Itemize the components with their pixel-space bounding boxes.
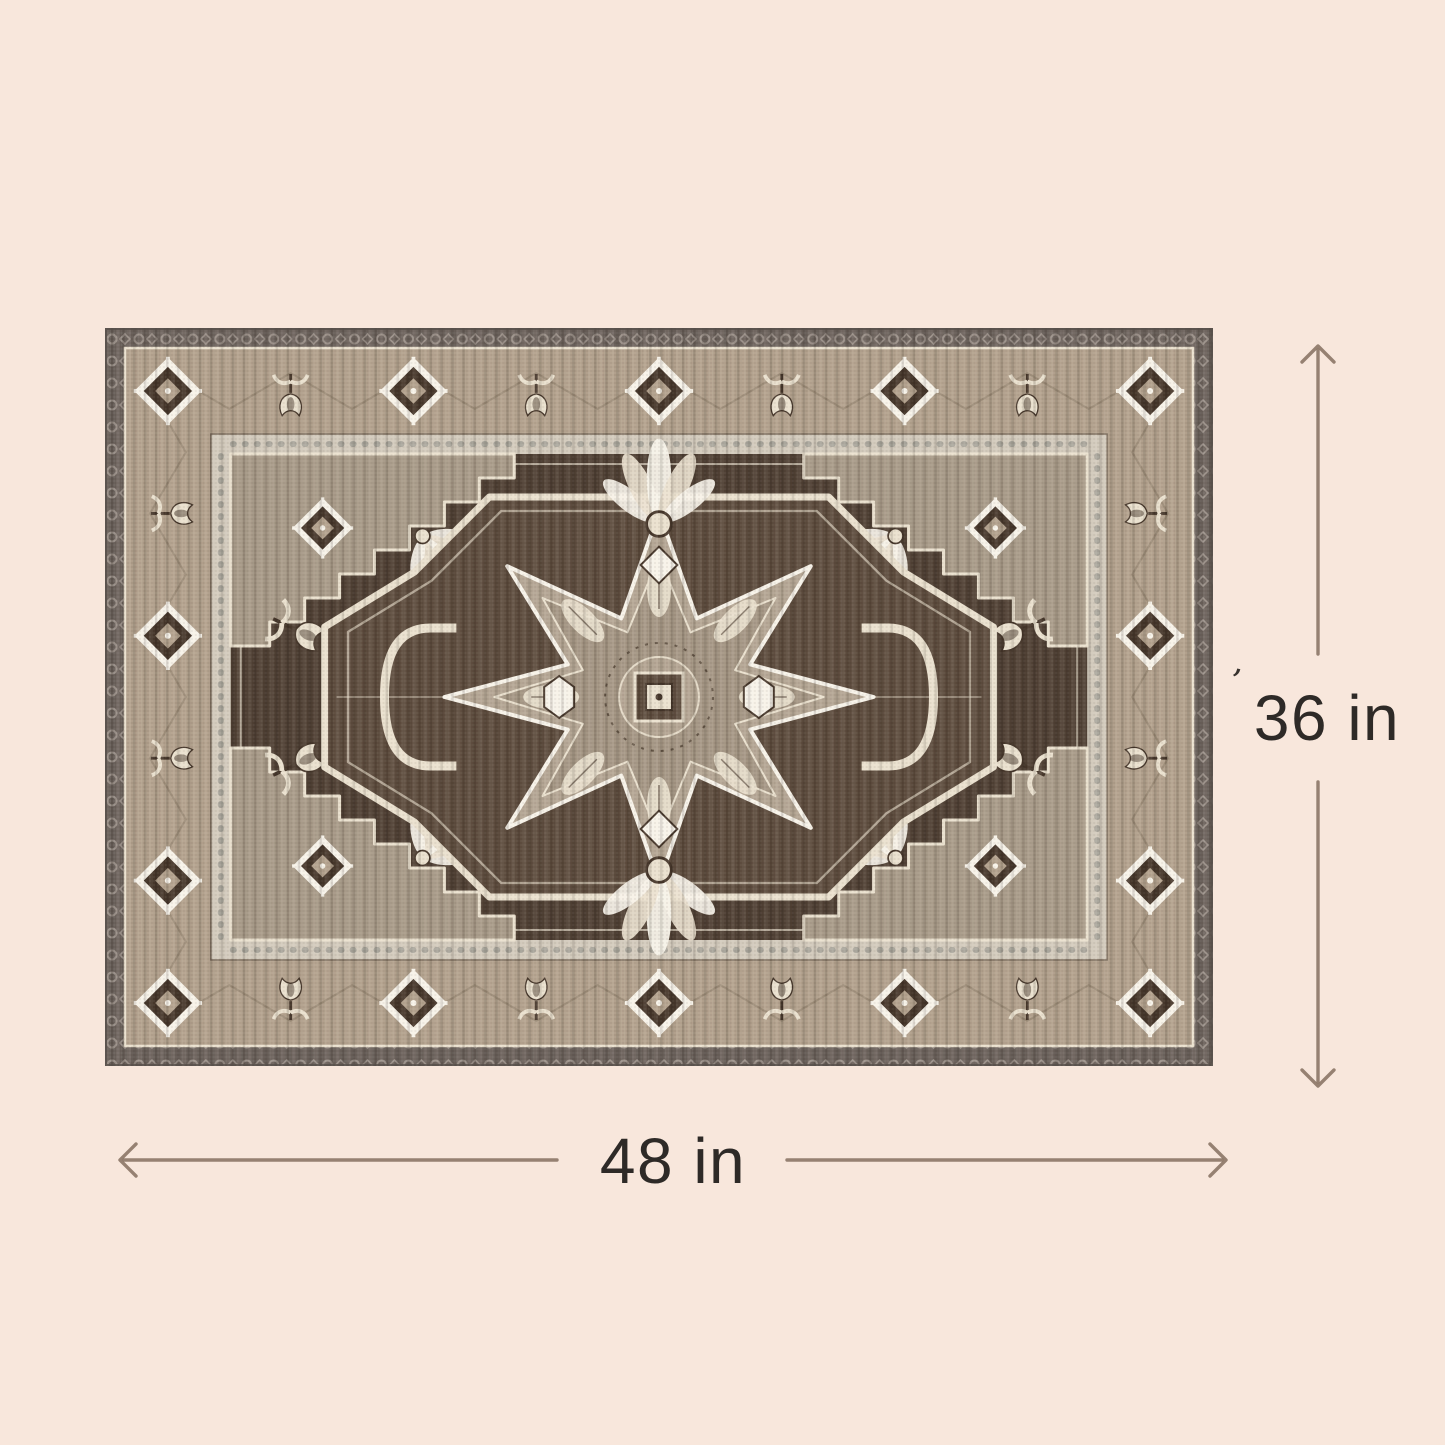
rug-graphic [105, 328, 1213, 1066]
stray-mark: ’ [1224, 661, 1244, 702]
width-label: 48 in [600, 1124, 746, 1198]
product-dimension-image: 36 in 48 in ’ [0, 0, 1445, 1445]
height-label: 36 in [1254, 681, 1400, 755]
rug-image [105, 328, 1213, 1066]
